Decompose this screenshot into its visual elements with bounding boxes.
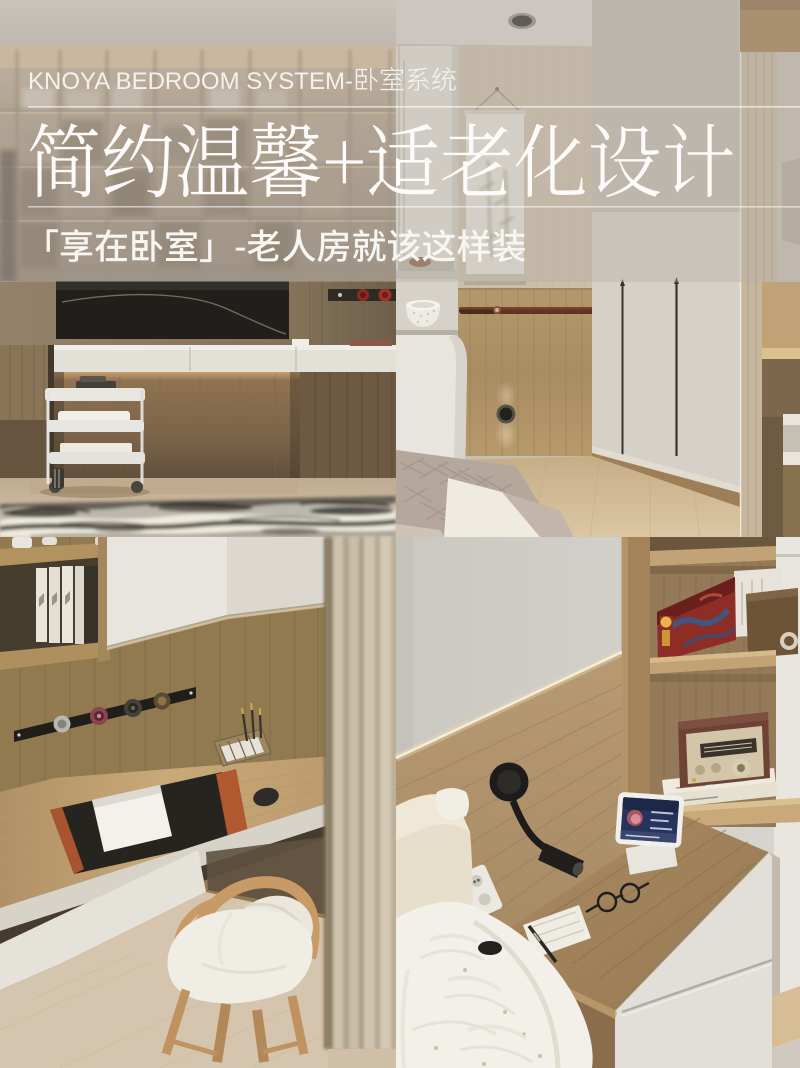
svg-text:KNOYA BEDROOM SYSTEM-: KNOYA BEDROOM SYSTEM- — [28, 68, 353, 95]
